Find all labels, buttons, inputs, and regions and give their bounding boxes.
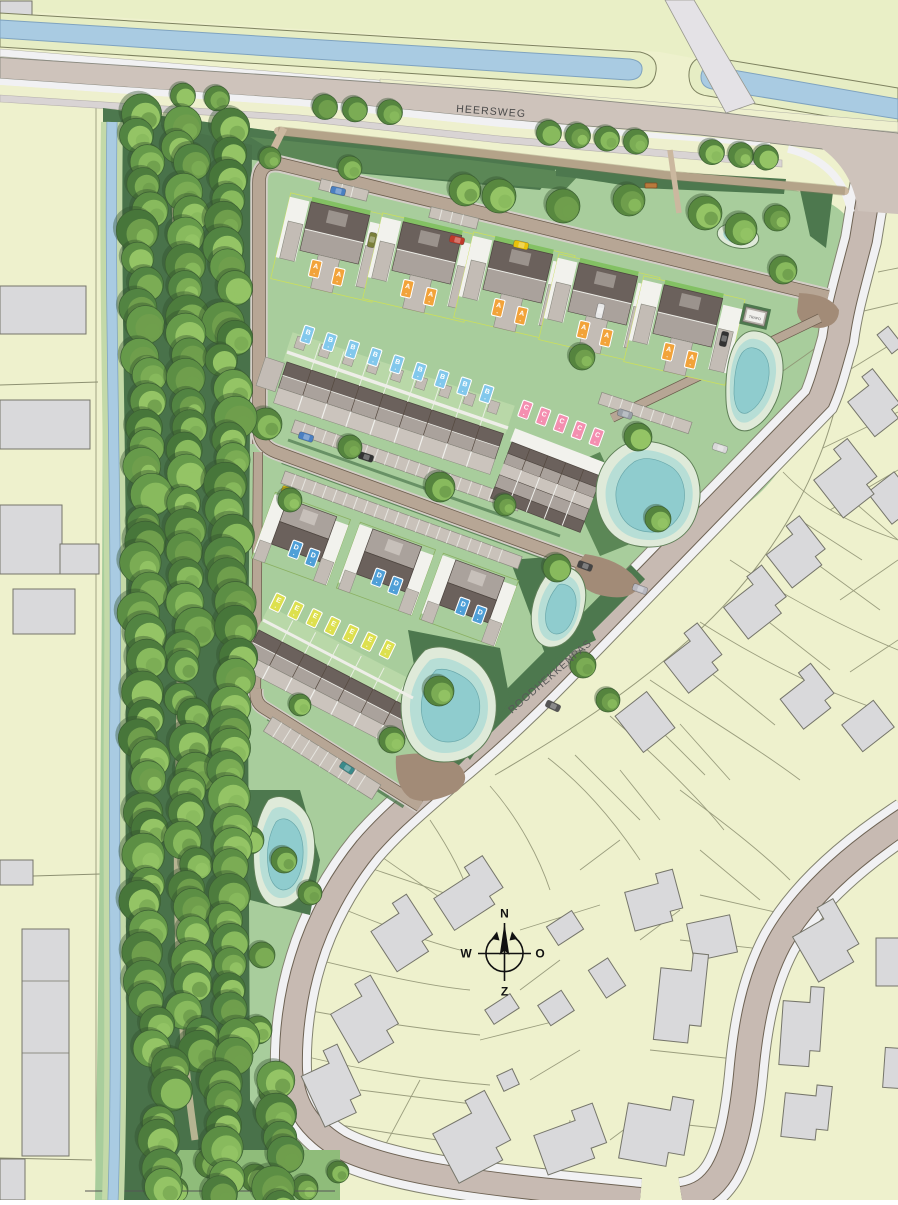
- svg-text:W: W: [460, 947, 472, 961]
- svg-text:O: O: [535, 947, 544, 961]
- svg-text:N: N: [500, 907, 509, 921]
- svg-text:Z: Z: [501, 985, 508, 999]
